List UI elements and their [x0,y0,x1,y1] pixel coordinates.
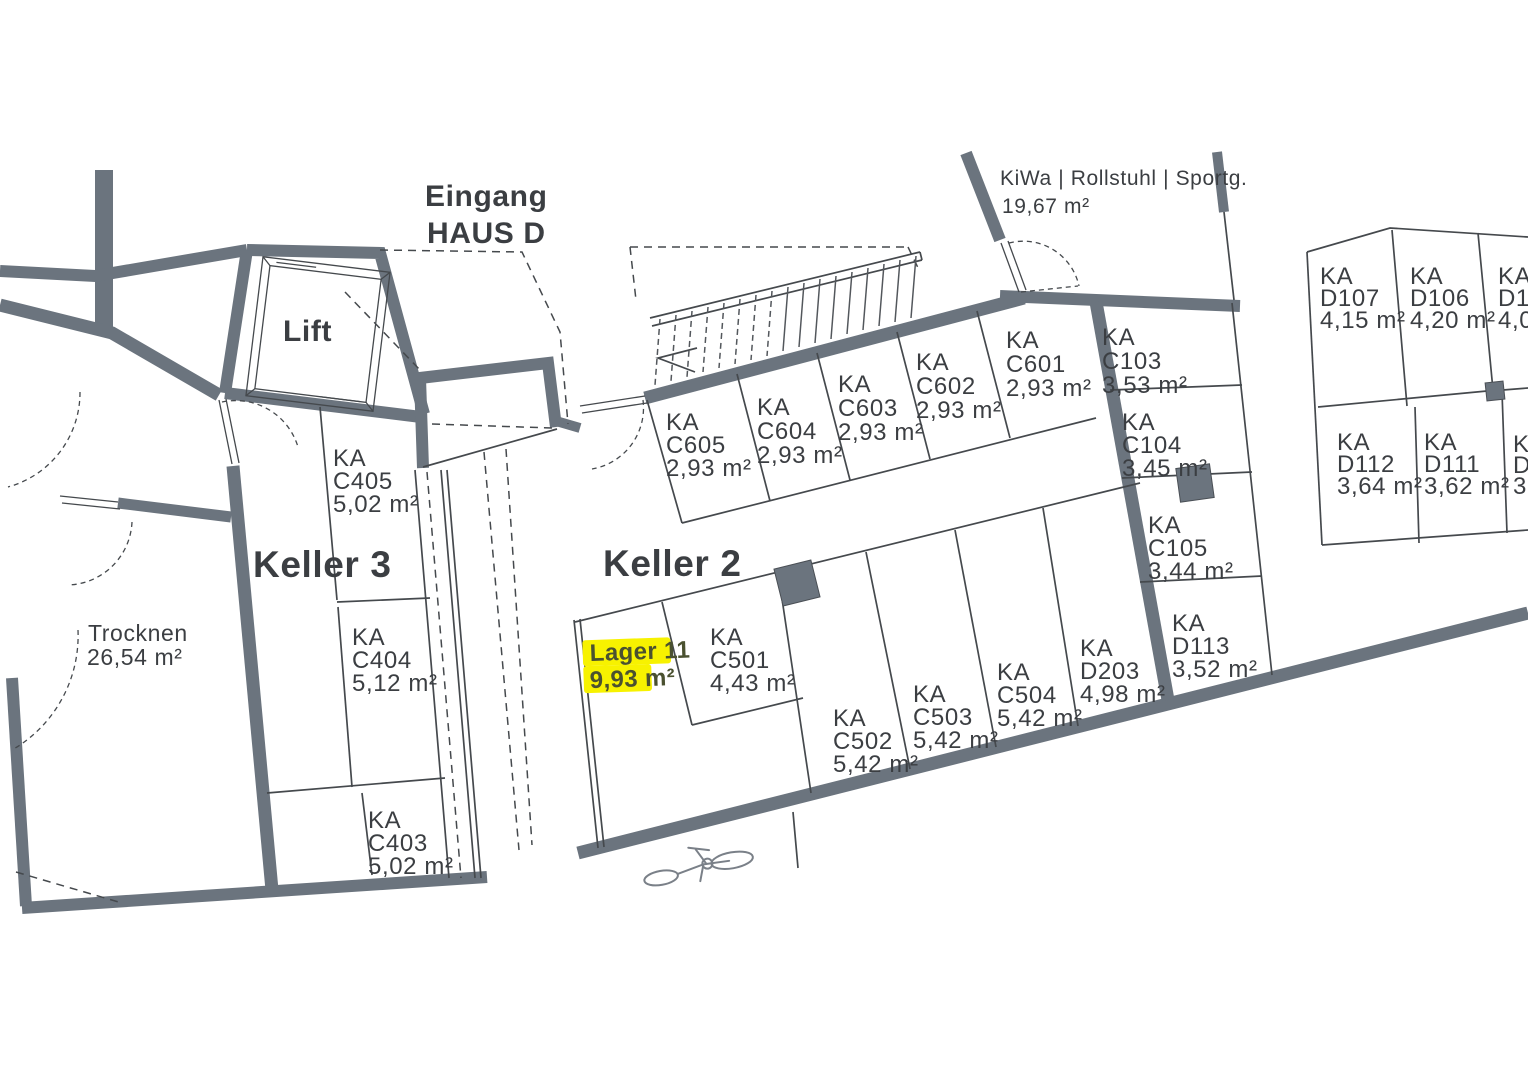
door-arc-kiwa [1009,241,1079,286]
corridor-dashed-right [506,449,532,845]
compartment-label-d10x-cut: KA D10 4,0 [1498,263,1528,334]
compartment-prefix: KA [1006,327,1039,354]
compartment-area: 3,52 m² [1172,656,1258,683]
compartment-prefix: KA [1102,324,1135,351]
highlighted-unit-area: 9,93 m² [589,664,675,694]
compartment-area: 5,42 m² [997,705,1083,732]
highlighted-unit: Lager 11 9,93 m² [582,637,691,695]
compartment-area: 2,93 m² [838,419,924,446]
outer-walls [0,170,1528,908]
column [1485,381,1505,401]
compartment-area: 3,62 m² [1424,473,1510,500]
room-area-trocknen: 26,54 m² [87,644,183,670]
compartment-area: 4,43 m² [710,670,796,697]
basement-floor-plan: Lager 11 9,93 m² Eingang HAUS D Keller 3… [0,0,1528,1080]
doors [8,241,1079,750]
compartment-area: 2,93 m² [666,455,752,482]
compartment-label-d106: KA D106 4,20 m² [1410,263,1496,334]
corridor-dashed-left [484,452,519,850]
door-arc-keller3-entry [222,401,298,447]
compartment-area: 3, [1513,473,1528,500]
door-arc-trocknen [68,522,132,585]
compartment-label-d113: KA D113 3,52 m² [1172,610,1258,683]
compartment-area: 5,42 m² [833,751,919,778]
compartment-label-c601: KA C601 2,93 m² [1006,327,1092,402]
compartment-labels: KA C405 5,02 m² KA C404 5,12 m² KA C403 … [333,263,1528,880]
compartment-area: 4,98 m² [1080,681,1166,708]
compartment-prefix: KA [757,394,790,421]
bicycle-sketch [640,837,755,891]
door-arc-top-left [8,392,80,487]
entrance-label-line1: Eingang [425,180,548,213]
compartment-label-c103: KA C103 3,53 m² [1102,324,1188,399]
entrance-label-line2: HAUS D [427,217,546,250]
room-area-kiwa: 19,67 m² [1002,195,1090,218]
room-label-lift: Lift [283,315,332,348]
compartment-area: 5,02 m² [333,491,419,518]
compartment-code: C602 [916,373,976,400]
compartment-area: 4,20 m² [1410,307,1496,334]
compartment-area: 5,12 m² [352,670,438,697]
compartment-area: 2,93 m² [1006,375,1092,402]
compartment-area: 2,93 m² [757,442,843,469]
stair-direction-arrow [658,348,697,372]
compartment-label-c404: KA C404 5,12 m² [352,624,438,697]
compartment-label-c602: KA C602 2,93 m² [916,349,1002,424]
compartment-label-d112: KA D112 3,64 m² [1337,429,1423,500]
stair-railing [650,252,920,318]
compartment-label-d111: KA D111 3,62 m² [1424,429,1510,500]
compartment-label-c403: KA C403 5,02 m² [368,807,454,880]
compartment-label-c501: KA C501 4,43 m² [710,624,796,697]
entrance-vestibule-walls [420,363,580,468]
compartment-label-c105: KA C105 3,44 m² [1148,512,1234,585]
compartment-prefix: KA [916,349,949,376]
compartment-label-c502: KA C502 5,42 m² [833,705,919,778]
compartment-area: 4,15 m² [1320,307,1406,334]
compartment-area: 3,53 m² [1102,372,1188,399]
compartment-label-d11x-cut: KA D 3, [1513,431,1528,500]
compartment-code: C601 [1006,351,1066,378]
room-label-trocknen: Trocknen [88,620,188,646]
compartment-area: 5,02 m² [368,853,454,880]
compartment-area: 3,44 m² [1148,558,1234,585]
compartment-label-c605: KA C605 2,93 m² [666,409,752,482]
compartment-area: 3,64 m² [1337,473,1423,500]
column [774,560,820,606]
compartment-label-c104: KA C104 3,45 m² [1122,409,1208,482]
floor-plan-page: Lager 11 9,93 m² Eingang HAUS D Keller 3… [0,0,1528,1080]
compartment-code: C103 [1102,348,1162,375]
compartment-code: C603 [838,395,898,422]
room-label-keller2: Keller 2 [603,543,742,584]
room-label-kiwa: KiWa | Rollstuhl | Sportg. [1000,167,1247,190]
compartment-label-c405: KA C405 5,02 m² [333,445,419,518]
compartment-area: 5,42 m² [913,727,999,754]
compartment-label-d107: KA D107 4,15 m² [1320,263,1406,334]
compartment-area: 3,45 m² [1122,455,1208,482]
compartment-prefix: KA [838,371,871,398]
highlighted-unit-name: Lager 11 [589,637,690,667]
room-label-keller3: Keller 3 [253,544,392,585]
compartment-area: 2,93 m² [916,397,1002,424]
compartment-area: 4,0 [1498,307,1528,334]
door-arc-left-outer [12,630,78,750]
compartment-code: C604 [757,418,817,445]
